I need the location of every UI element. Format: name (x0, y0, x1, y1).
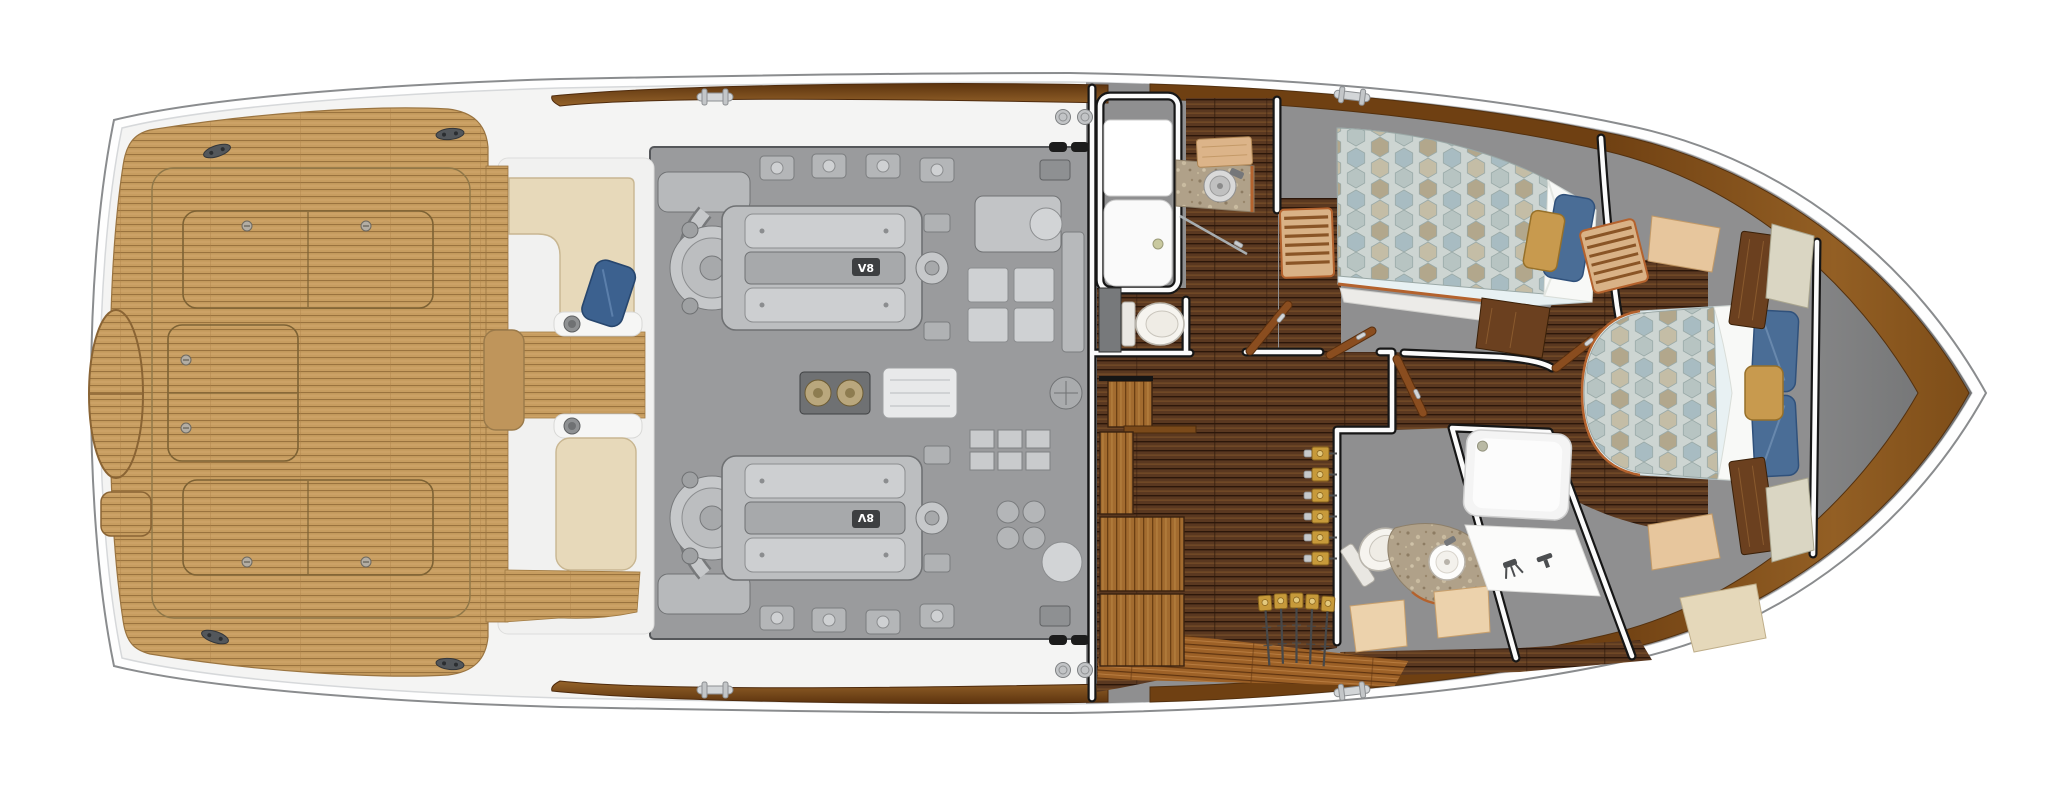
vent-icon (1071, 635, 1089, 645)
deck-plan-page: V8 (0, 0, 2048, 787)
cockpit-teak-sole (110, 108, 488, 676)
stair-step (1100, 432, 1133, 514)
stair-edge (1099, 376, 1153, 381)
head-stool (1350, 600, 1407, 652)
shower-drain (1477, 441, 1488, 452)
sink-icon (1429, 544, 1465, 580)
vent-icon (1071, 142, 1089, 152)
mezzanine-walkway (505, 332, 645, 418)
stair-step (1108, 381, 1152, 427)
deck-screw (361, 221, 371, 231)
deck-fill-icon (1056, 663, 1071, 678)
cockpit-aft-step (505, 570, 640, 622)
deck-fill-icon (1078, 110, 1093, 125)
master-bed (1582, 304, 1799, 482)
stateroom-bench (1766, 478, 1814, 562)
toilet-icon (1122, 302, 1184, 346)
deck-screw (361, 557, 371, 567)
shower-drain (1153, 239, 1163, 249)
vent-icon (1049, 142, 1067, 152)
shower-seat (1104, 120, 1172, 196)
cockpit (89, 108, 654, 676)
deck-fill-icon (1078, 663, 1093, 678)
vent-icon (1049, 635, 1067, 645)
deck-screw (181, 423, 191, 433)
cutting-board (1196, 137, 1252, 168)
deck-fill-icon (1056, 110, 1071, 125)
stair-rail (1124, 426, 1196, 433)
mezzanine-seat-aft (556, 438, 636, 570)
stair-step (1100, 594, 1184, 666)
deck-screw (181, 355, 191, 365)
head-cabinet (1099, 288, 1121, 352)
yacht-deck-plan: V8 (0, 0, 2048, 787)
head-stool (1434, 586, 1490, 638)
sink-icon (1204, 170, 1236, 202)
stateroom-bench (1766, 224, 1814, 308)
deck-screw (242, 557, 252, 567)
stair-step (1100, 517, 1184, 591)
engine-access-step (484, 330, 524, 430)
pillow (1745, 366, 1783, 420)
shower-stall (1463, 429, 1572, 520)
deck-screw (242, 221, 252, 231)
closet-steps (1280, 208, 1334, 278)
engine-room (650, 147, 1088, 639)
